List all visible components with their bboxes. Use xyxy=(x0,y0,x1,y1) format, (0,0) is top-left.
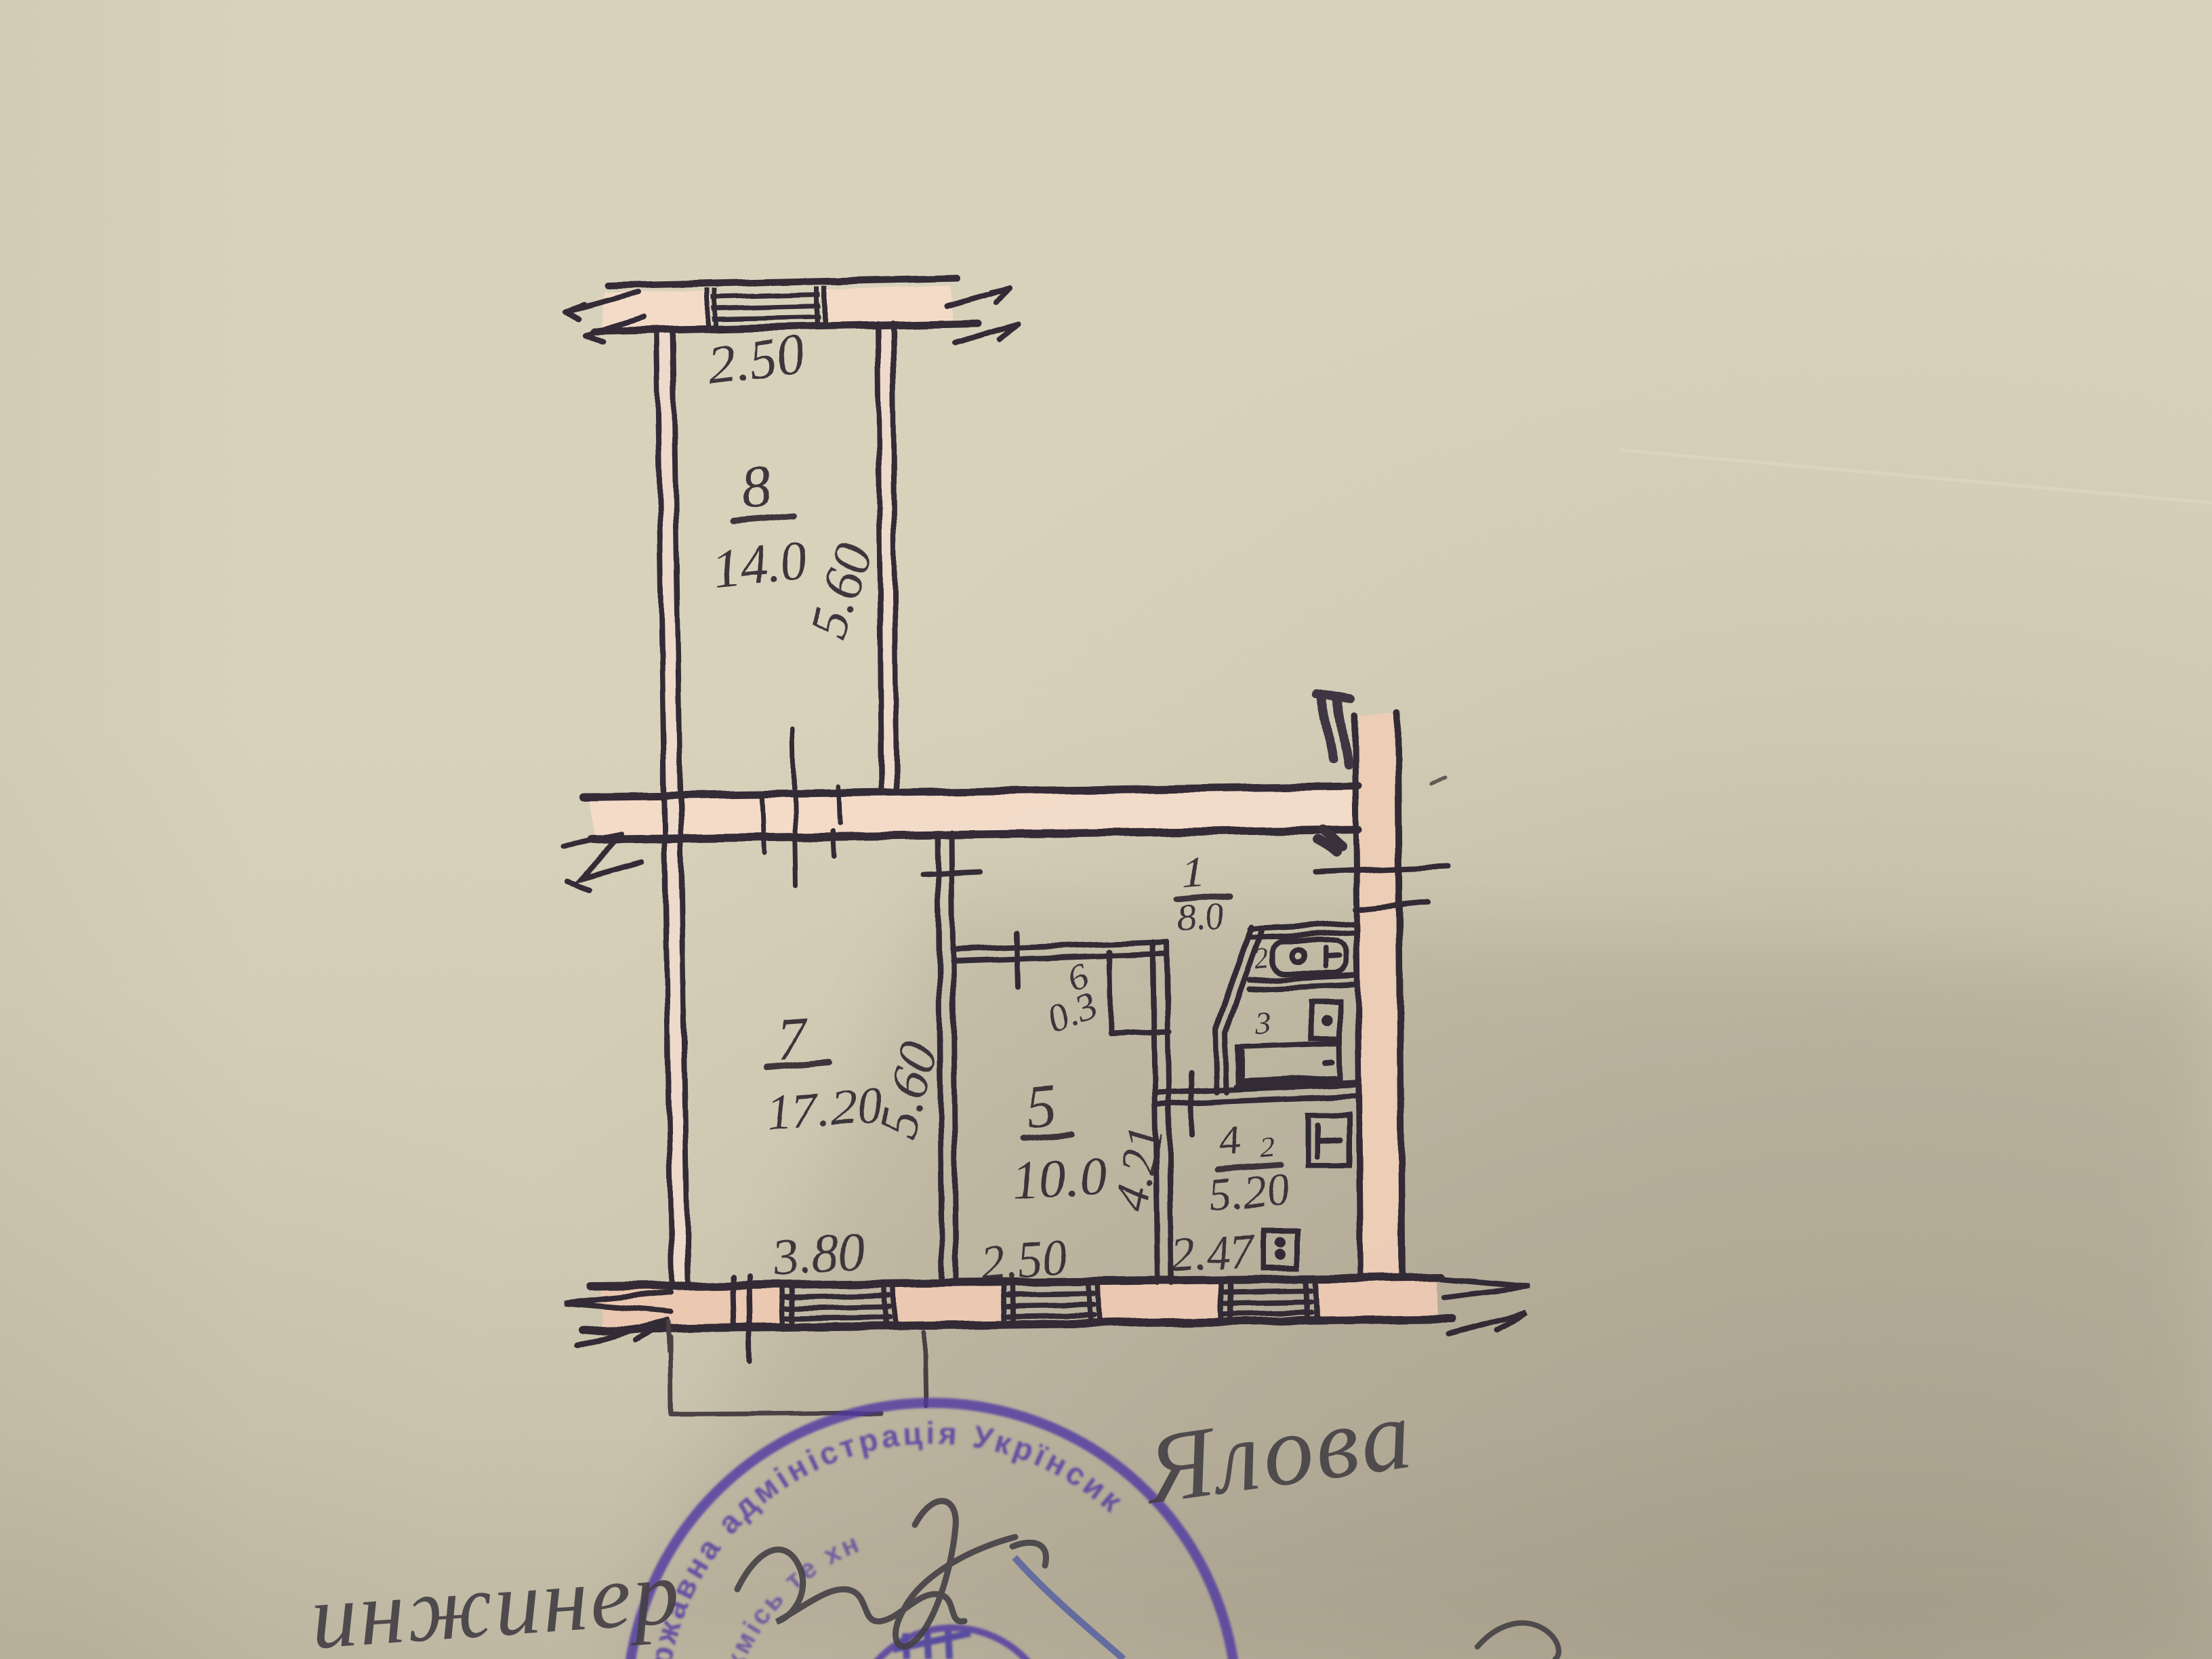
svg-text:2.50: 2.50 xyxy=(978,1229,1070,1292)
svg-text:10.0: 10.0 xyxy=(1010,1145,1109,1212)
svg-text:8.0: 8.0 xyxy=(1176,895,1226,941)
svg-text:2: 2 xyxy=(1259,1131,1276,1164)
svg-text:4: 4 xyxy=(1217,1117,1242,1164)
svg-text:2.47: 2.47 xyxy=(1170,1225,1257,1282)
svg-text:14.0: 14.0 xyxy=(710,531,810,600)
svg-text:1: 1 xyxy=(1180,846,1206,898)
svg-text:3: 3 xyxy=(1252,1004,1272,1041)
svg-text:8: 8 xyxy=(739,454,774,522)
svg-text:5: 5 xyxy=(1023,1072,1059,1140)
svg-text:2.50: 2.50 xyxy=(704,323,808,396)
svg-text:3.80: 3.80 xyxy=(769,1220,867,1287)
svg-text:17.20: 17.20 xyxy=(764,1077,884,1142)
svg-text:5.20: 5.20 xyxy=(1207,1164,1291,1221)
